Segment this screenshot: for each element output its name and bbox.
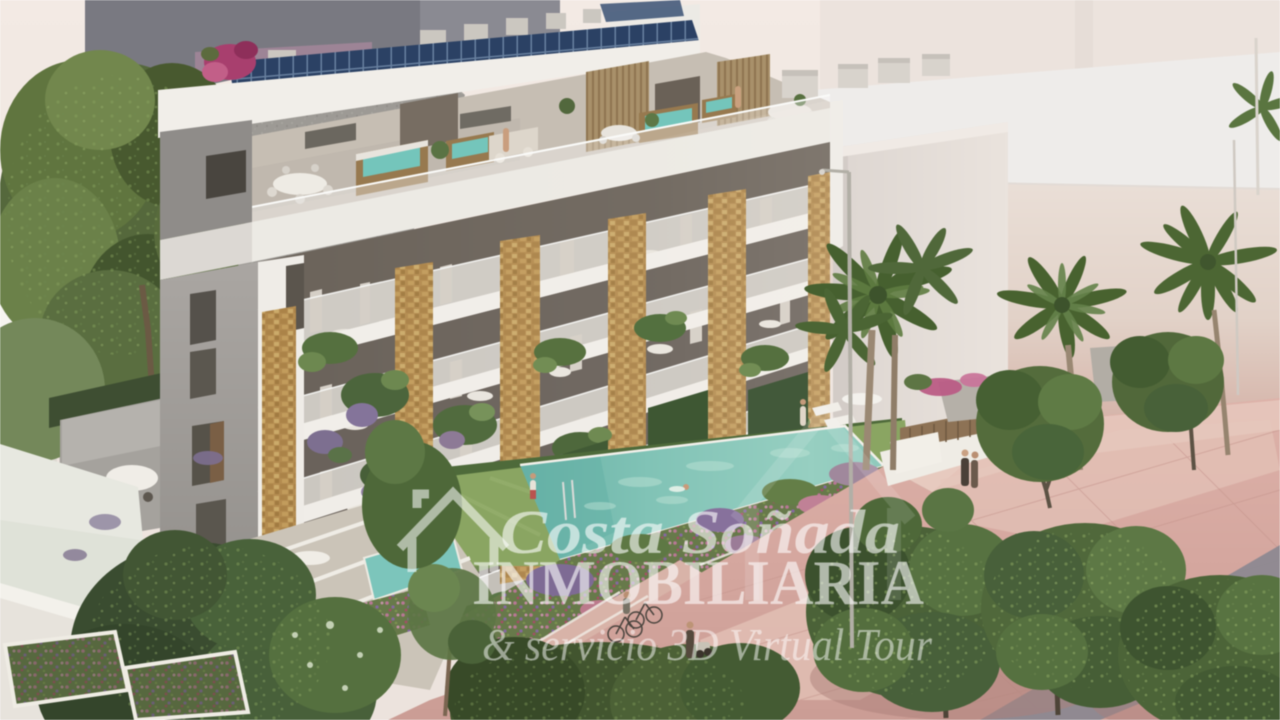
svg-text:INMOBILIARIA: INMOBILIARIA <box>472 548 924 618</box>
svg-text:& servicio 3D Virtual Tour: & servicio 3D Virtual Tour <box>482 619 933 670</box>
